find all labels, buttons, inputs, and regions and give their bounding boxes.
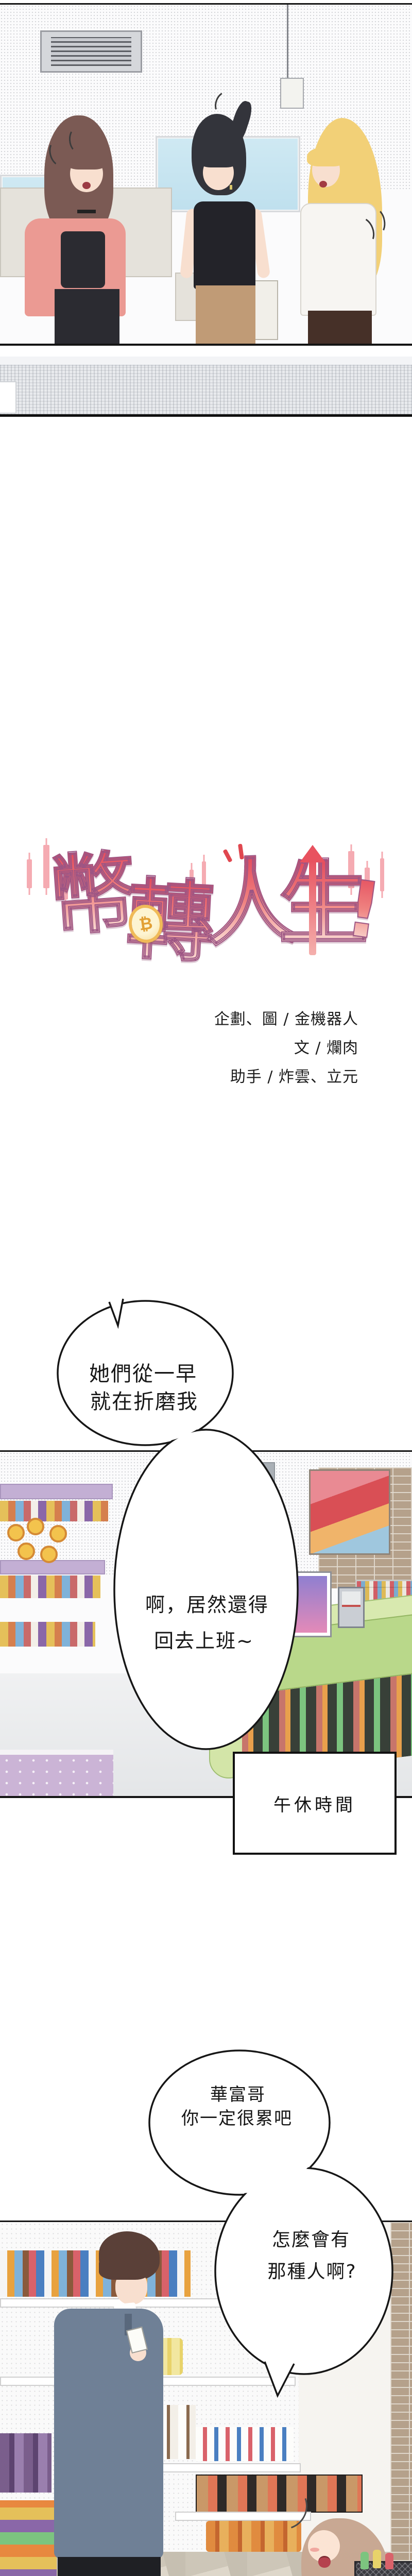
bubble-c-line4: 那種人啊? [267, 2257, 356, 2283]
candy-pop-icon [18, 1543, 35, 1560]
bottle-red [385, 2553, 393, 2569]
girl-open-mouth [318, 2556, 331, 2568]
divider-band [0, 357, 412, 417]
logo-char-1: 幣 [46, 848, 139, 940]
shelf-products [0, 1501, 108, 1521]
card-reader [338, 1587, 365, 1628]
lamp-rod [287, 5, 288, 80]
brick-pillar [390, 2222, 412, 2576]
bangs [307, 147, 345, 166]
candy-pop-icon [27, 1518, 44, 1535]
man-pants [58, 2557, 161, 2576]
earring [230, 185, 232, 190]
window-signage [309, 1469, 390, 1555]
bottle-yellow [373, 2550, 381, 2568]
shelf-products [0, 1575, 100, 1598]
bubble-b-line2: 回去上班~ [154, 1625, 254, 1653]
bubble-a-line1: 她們從一早 [89, 1357, 197, 1387]
hanging-lamp [280, 78, 304, 109]
juice-cartons [0, 2500, 57, 2576]
bubble-c-line1: 華富哥 [210, 2080, 266, 2106]
open-mouth [82, 182, 91, 189]
candy-pop-icon [49, 1525, 67, 1543]
girl-blush [310, 2548, 319, 2552]
bangs [66, 148, 107, 170]
bubble-b-line1: 啊，居然還得 [145, 1589, 269, 1617]
bubble-c-line3: 怎麼會有 [272, 2225, 350, 2251]
bubble-a-line2: 就在折磨我 [90, 1385, 198, 1415]
brown-skirt [308, 311, 372, 345]
open-mouth [319, 181, 327, 188]
webtoon-page: 幣 轉 人 生 ! ₿ 企劃、圖 / 金機器人 文 / 爛肉 助手 / 炸雲、立… [0, 0, 412, 2576]
panel-office [0, 3, 412, 346]
purple-cups [0, 2433, 51, 2493]
ac-vent [40, 30, 142, 73]
up-arrow-head-icon [300, 845, 325, 862]
shelf-header [0, 1484, 113, 1499]
caption-box-text: 午休時間 [273, 1791, 356, 1816]
shelf-products [0, 1622, 95, 1647]
yogurt-cups [196, 2427, 294, 2461]
choker [77, 210, 96, 213]
bangs [199, 148, 238, 167]
counter-signboard [288, 1571, 332, 1637]
candy-pop-icon [7, 1524, 25, 1541]
bottle-green [360, 2552, 369, 2569]
black-top [61, 231, 105, 288]
shelf-bar [0, 2298, 290, 2308]
beige-pants [196, 285, 255, 345]
black-sleeveless-top [194, 201, 255, 289]
credit-assistants: 助手 / 炸雲、立元 [230, 1064, 358, 1087]
panel-store-interior [0, 1450, 412, 1798]
candlestick-icon [27, 859, 32, 888]
coin-glyph: ₿ [138, 913, 153, 934]
band-notch [0, 381, 16, 414]
candy-pop-icon [40, 1546, 58, 1563]
caption-box: 午休時間 [233, 1752, 397, 1855]
up-arrow-icon [309, 859, 316, 955]
shelf-bar [160, 2463, 301, 2472]
credit-writer: 文 / 爛肉 [294, 1035, 358, 1058]
bubble-c-line2: 你一定很累吧 [181, 2104, 293, 2129]
black-skirt [55, 289, 119, 346]
milk-cartons [0, 2250, 191, 2297]
band-texture [0, 365, 412, 414]
credit-plan-art: 企劃、圖 / 金機器人 [214, 1006, 358, 1029]
purple-display-case [0, 1750, 113, 1798]
